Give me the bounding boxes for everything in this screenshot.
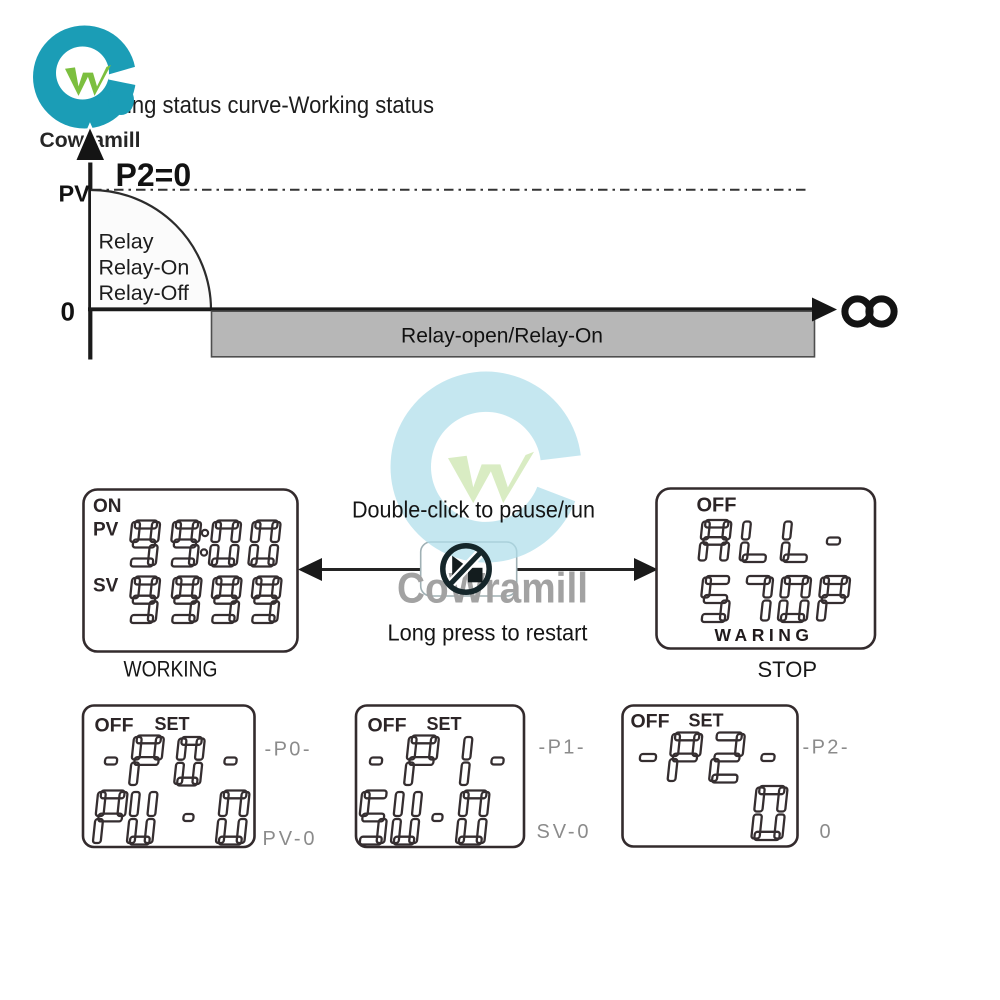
svg-text:WORKING: WORKING [124, 657, 218, 682]
svg-text:Double-click to pause/run: Double-click to pause/run [352, 497, 595, 523]
svg-text:PV: PV [93, 520, 119, 541]
svg-text:SET: SET [689, 711, 724, 731]
svg-text:Relay-On: Relay-On [99, 256, 190, 280]
svg-text:-P2-: -P2- [803, 737, 848, 759]
svg-text:P2=0: P2=0 [116, 157, 192, 193]
svg-text:Long press to restart: Long press to restart [388, 620, 589, 646]
svg-text:-P1-: -P1- [539, 737, 584, 759]
svg-text:OFF: OFF [368, 715, 407, 737]
svg-text:-P0-: -P0- [265, 739, 310, 761]
svg-text:Relay-Off: Relay-Off [99, 281, 189, 305]
svg-text:PV: PV [59, 181, 91, 207]
svg-text:PV-0: PV-0 [263, 828, 315, 850]
svg-text:WARING: WARING [715, 625, 814, 645]
svg-text:Relay-open/Relay-On: Relay-open/Relay-On [401, 325, 603, 348]
svg-text:SV-0: SV-0 [537, 821, 589, 843]
svg-text:Relay: Relay [99, 230, 154, 254]
svg-text:OFF: OFF [95, 715, 134, 737]
svg-text:STOP: STOP [758, 657, 818, 682]
svg-text:OFF: OFF [697, 495, 737, 517]
svg-text:0: 0 [820, 821, 831, 843]
svg-text:OFF: OFF [631, 711, 670, 733]
svg-text:0: 0 [61, 297, 75, 327]
svg-text:SV: SV [93, 576, 119, 597]
svg-text:CoWramill: CoWramill [397, 565, 588, 613]
svg-text:ON: ON [93, 496, 122, 517]
svg-text:SET: SET [155, 714, 190, 734]
svg-text:SET: SET [427, 714, 462, 734]
